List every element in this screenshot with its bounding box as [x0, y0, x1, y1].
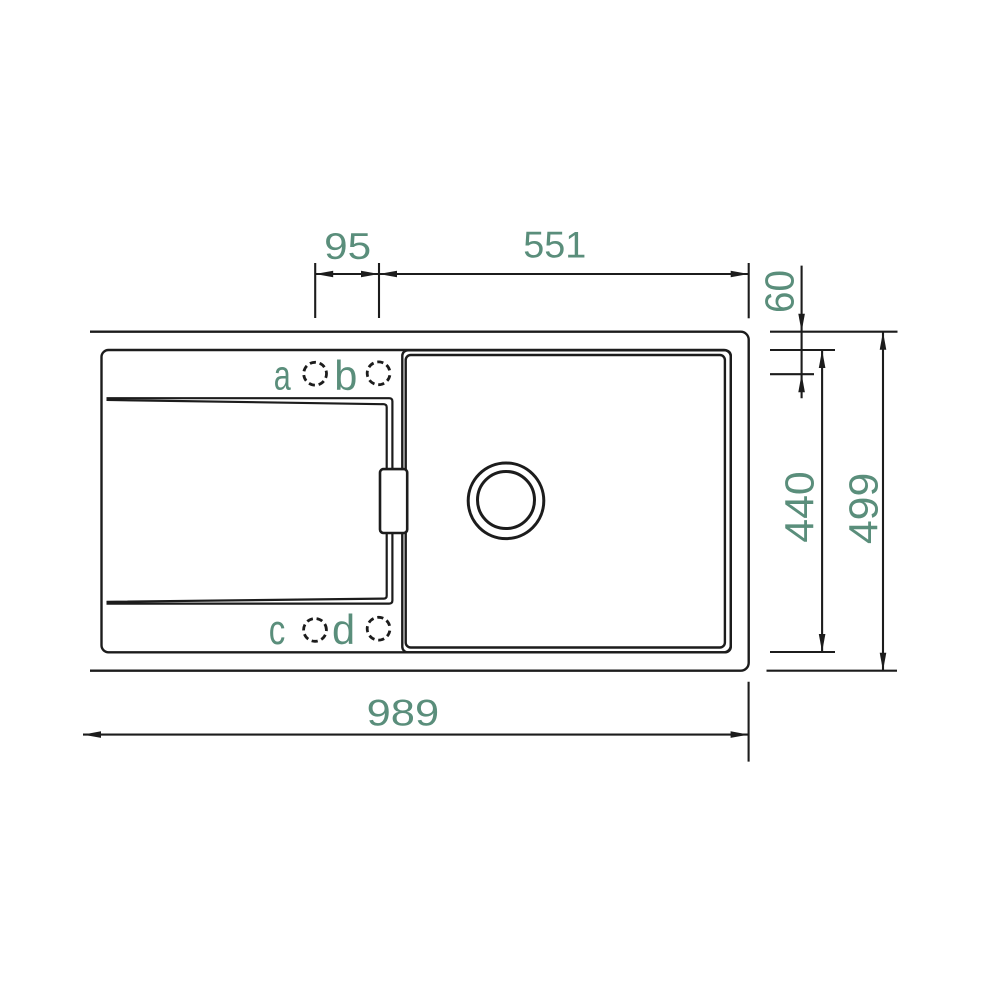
svg-text:989: 989 [367, 692, 440, 733]
svg-text:b: b [334, 352, 357, 399]
svg-text:440: 440 [777, 471, 823, 543]
svg-text:551: 551 [523, 225, 586, 266]
svg-text:95: 95 [324, 226, 371, 267]
svg-text:d: d [332, 606, 355, 653]
svg-text:a: a [274, 351, 292, 398]
svg-text:60: 60 [757, 270, 803, 313]
svg-text:499: 499 [840, 473, 886, 545]
svg-text:c: c [269, 606, 286, 653]
